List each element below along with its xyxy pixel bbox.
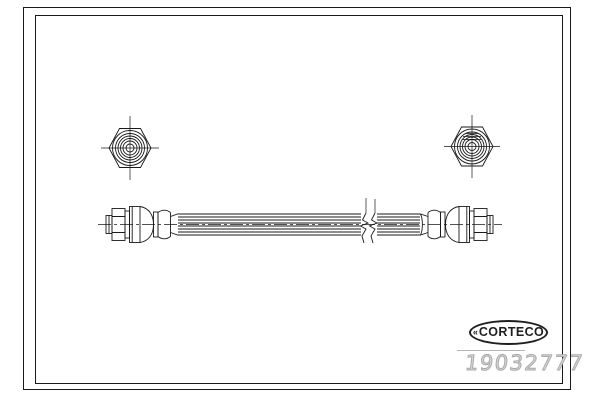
hose-break-symbol — [361, 198, 378, 243]
logo-chevron-icon: « — [473, 328, 478, 337]
catalog-product-image: « CORTECO 19032777 — [0, 0, 600, 400]
right-coupling-front-view — [444, 115, 500, 178]
hose-assembly-side-view — [98, 198, 502, 243]
part-number: 19032777 — [464, 353, 561, 374]
logo-text: CORTECO — [479, 326, 544, 339]
right-coupling-crosshair — [444, 115, 500, 178]
corteco-logo: « CORTECO — [469, 320, 548, 345]
left-coupling-front-view — [101, 116, 159, 180]
part-number-block: 19032777 — [455, 350, 560, 374]
left-coupling-crosshair — [101, 116, 159, 180]
